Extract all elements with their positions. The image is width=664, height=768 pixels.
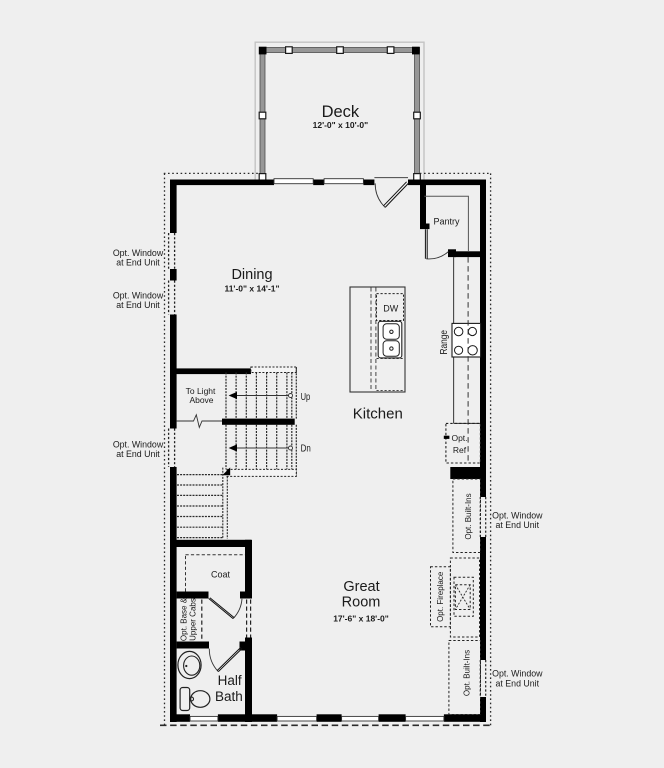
svg-text:Opt. Window: Opt. Window [492,510,543,520]
svg-text:Opt. Window: Opt. Window [113,248,164,258]
svg-text:Room: Room [342,594,381,610]
svg-text:Opt. Window: Opt. Window [113,439,164,449]
svg-text:Bath: Bath [215,689,243,704]
svg-text:at End Unit: at End Unit [496,520,540,530]
svg-text:17'-6" x 18'-0": 17'-6" x 18'-0" [333,613,389,623]
svg-text:Opt. Fireplace: Opt. Fireplace [436,571,445,622]
svg-text:Opt. Base &: Opt. Base & [179,597,188,641]
svg-text:Half: Half [218,673,242,688]
svg-text:Opt. Window: Opt. Window [492,669,543,679]
svg-text:Dining: Dining [231,267,272,283]
svg-text:Deck: Deck [322,103,360,121]
svg-text:Ref: Ref [453,445,467,455]
svg-text:Up: Up [301,391,311,403]
svg-text:Coat: Coat [211,569,231,579]
svg-text:Opt. Built-Ins: Opt. Built-Ins [464,493,473,539]
svg-text:Opt.: Opt. [451,433,467,443]
svg-text:Great: Great [343,579,379,595]
svg-text:at End Unit: at End Unit [116,449,160,459]
svg-text:Above: Above [189,395,213,405]
svg-text:Opt. Window: Opt. Window [113,290,164,300]
svg-text:at End Unit: at End Unit [496,678,540,688]
svg-text:Pantry: Pantry [433,217,460,227]
svg-text:Range: Range [439,330,450,355]
svg-text:DW: DW [383,303,398,313]
svg-text:at End Unit: at End Unit [116,258,160,268]
svg-text:Opt. Built-Ins: Opt. Built-Ins [463,650,472,696]
svg-text:Upper Cabs: Upper Cabs [189,598,198,641]
svg-text:Kitchen: Kitchen [353,406,403,423]
svg-text:12'-0" x 10'-0": 12'-0" x 10'-0" [313,120,369,130]
svg-text:Dn: Dn [301,443,311,455]
svg-text:at End Unit: at End Unit [116,300,160,310]
svg-text:11'-0" x 14'-1": 11'-0" x 14'-1" [224,283,279,293]
